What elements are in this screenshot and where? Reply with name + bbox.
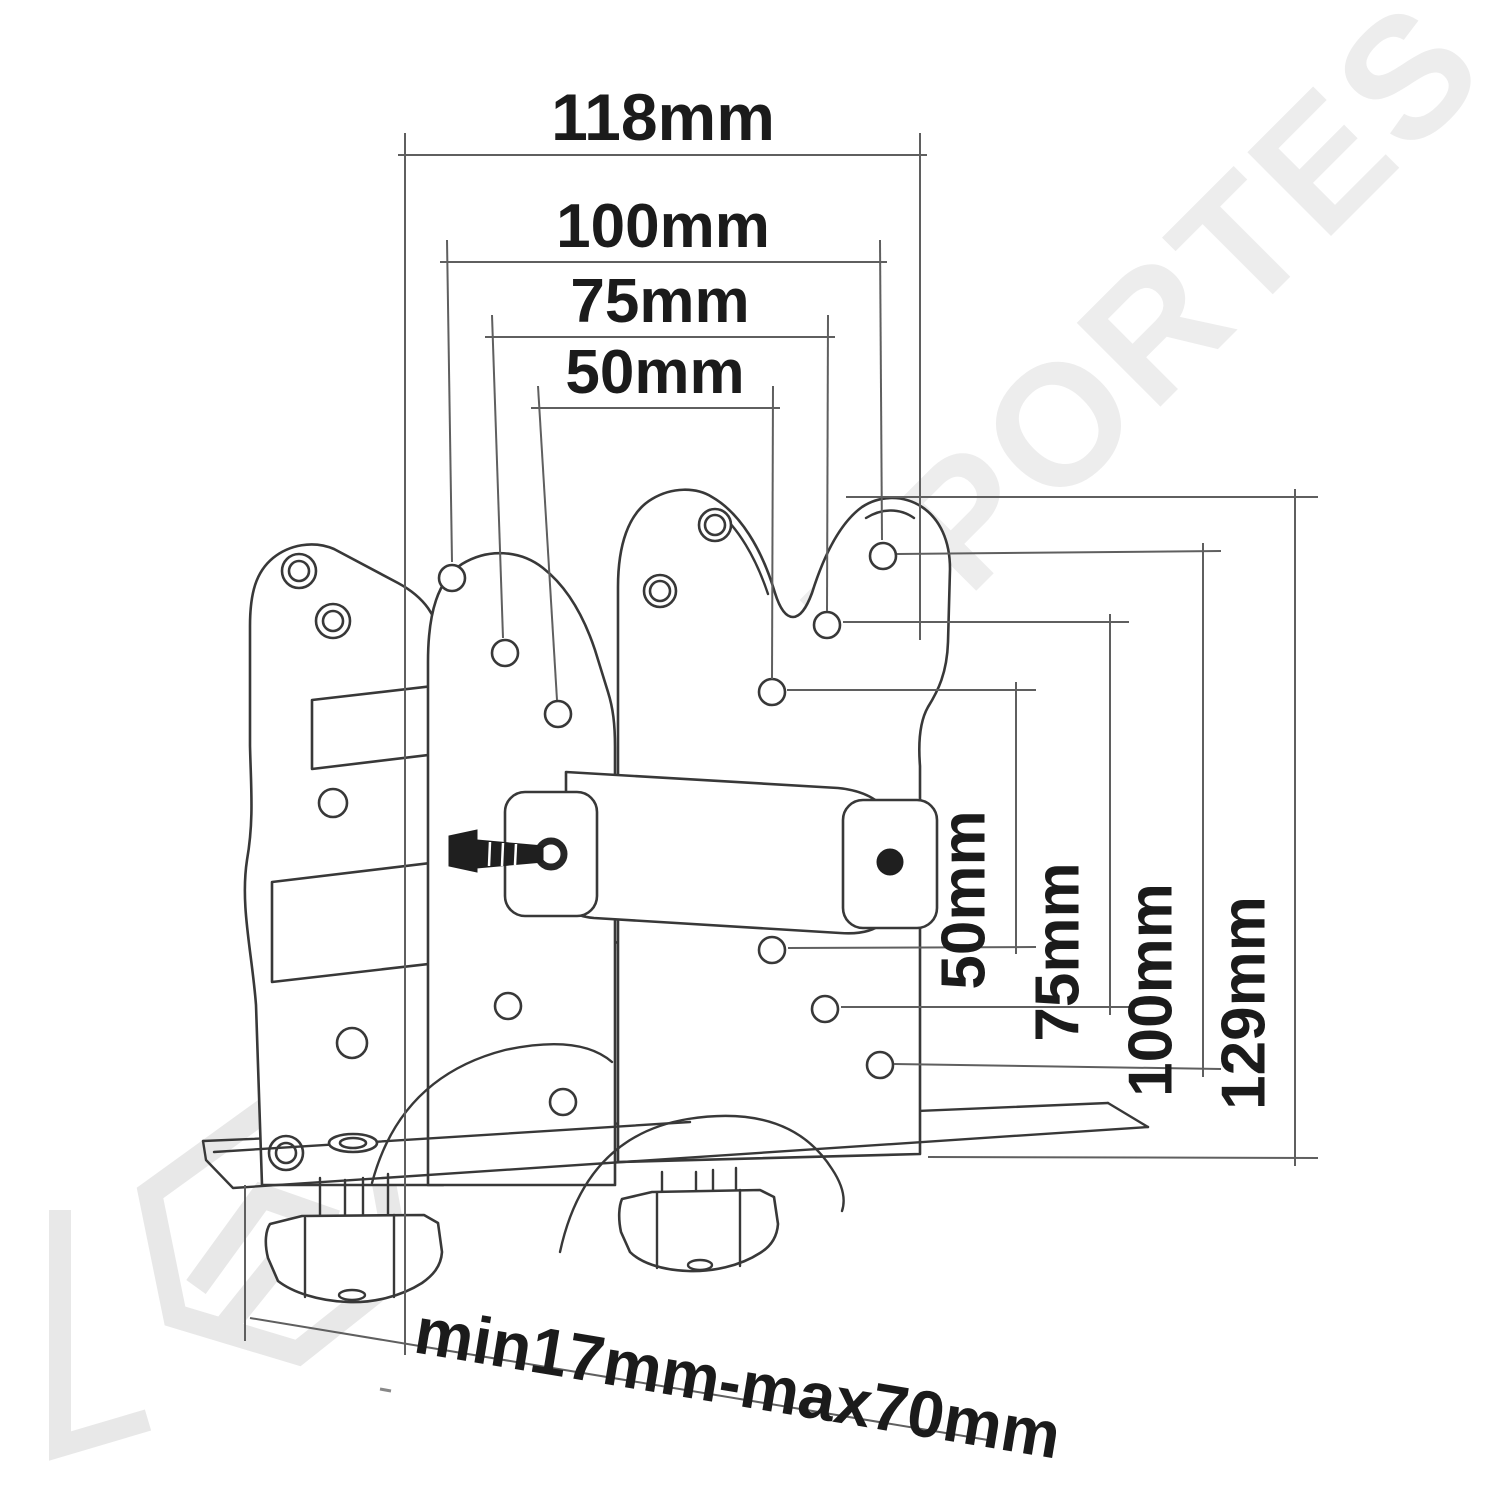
dim-top-118mm-label: 118mm [551,80,775,154]
vesa-hole-50-top-right [759,679,785,705]
clamp-right-tab-hole [877,849,903,875]
dim-right-129mm-label: 129mm [1210,896,1279,1110]
dim-right-75mm-label: 75mm [1024,862,1093,1041]
vesa-hole-50-left [545,701,571,727]
dim-top-75mm-label: 75mm [570,267,749,336]
dim-top-100mm-label: 100mm [556,192,770,261]
screw-hole [289,561,309,581]
screw-hole [337,1028,367,1058]
vesa-hole-100-bottom-right [867,1052,893,1078]
bolt-thread [489,842,490,866]
leader-129mm-bottom [928,1157,1318,1158]
tray-counterbore-hole [340,1138,366,1148]
extension-line-75-right [827,315,828,611]
screw-hole [323,611,343,631]
extension-line-100-left [447,240,452,562]
pole-clamp [449,772,937,933]
screw-hole [319,789,347,817]
extension-line-50-right [772,386,773,679]
vesa-hole-75-bottom-right [812,996,838,1022]
left-thumbscrew [266,1174,442,1302]
logo-left-fragment [60,1210,148,1446]
dim-bottom-clamp-range-label: min17mm-max70mm [410,1293,1066,1473]
vesa-hole-100-left [439,565,465,591]
leader-50mm-bottom [788,947,1036,948]
vesa-hole-100-top-right [870,543,896,569]
dim-right-50mm-label: 50mm [930,810,999,989]
bolt-thread [502,843,503,866]
bracket-drawing [203,490,1148,1391]
stray-mark [380,1389,391,1391]
bracket-technical-drawing: ABC SUPORTES [0,0,1500,1492]
dim-right-100mm-label: 100mm [1117,883,1186,1097]
right-thumbscrew [619,1168,778,1271]
vesa-hole-50-bottom-right [759,937,785,963]
screw-hole [650,581,670,601]
base-tray-right-cap [1108,1103,1148,1127]
screw-hole [705,515,725,535]
bolt-thread [515,844,516,865]
technical-drawing-page: ABC SUPORTES [0,0,1500,1492]
clamp-bolt-head [449,830,477,872]
vesa-hole-75-top-right [814,612,840,638]
dim-top-50mm-label: 50mm [565,338,744,407]
screw-hole [495,993,521,1019]
screw-hole [550,1089,576,1115]
vesa-hole-75-left [492,640,518,666]
